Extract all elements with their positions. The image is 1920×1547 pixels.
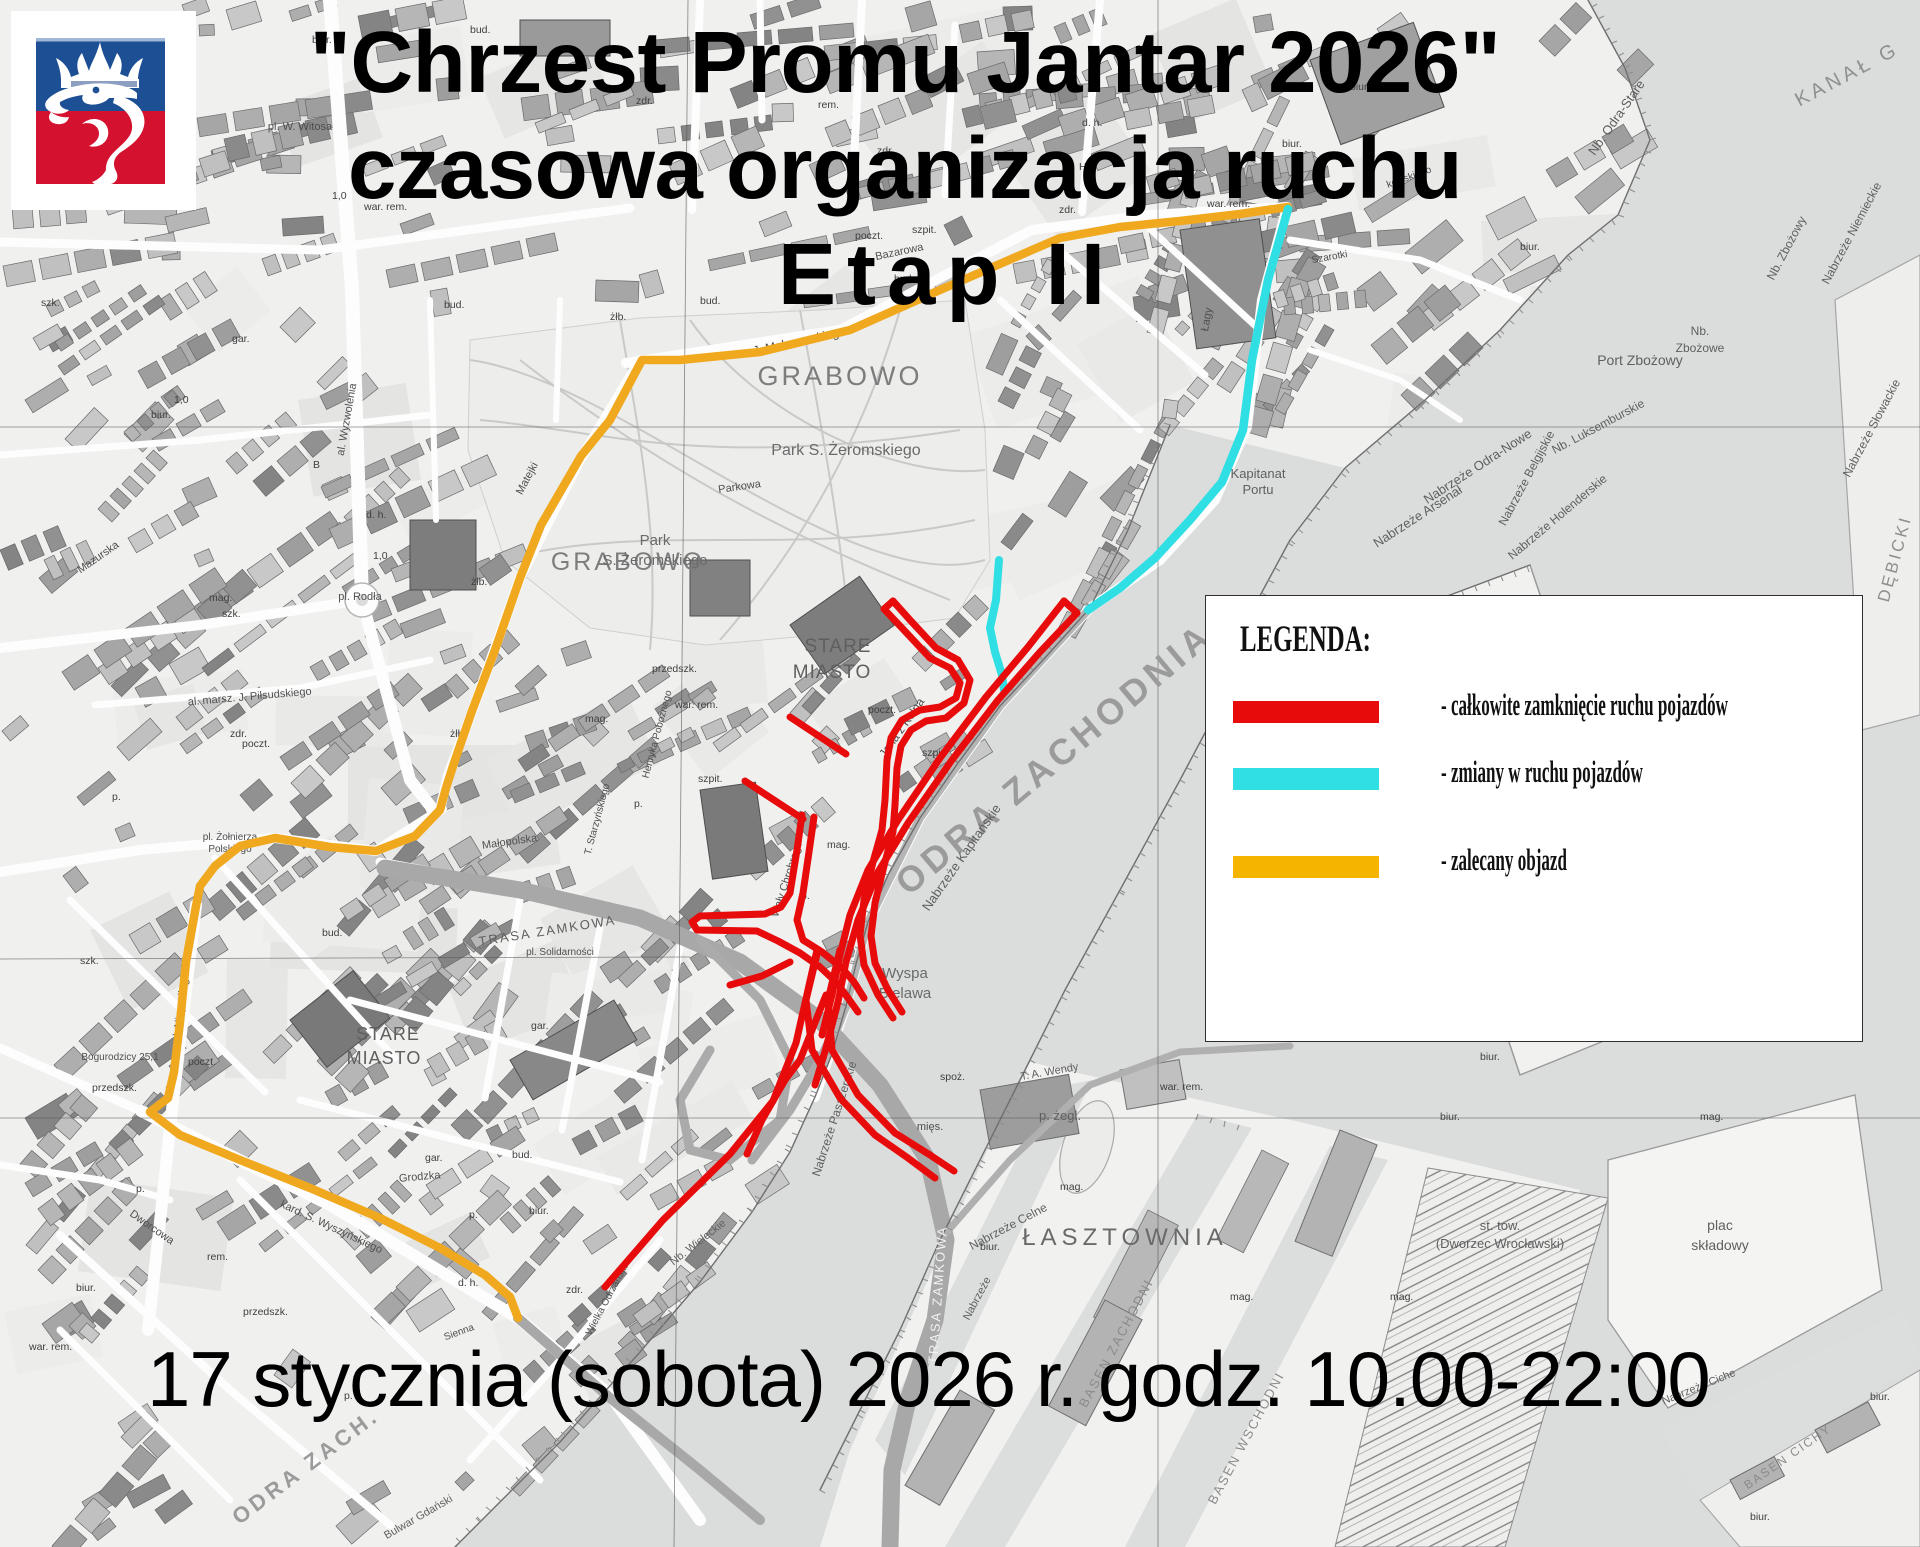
svg-text:war. rem.: war. rem.	[28, 1341, 72, 1353]
svg-text:Kapitanat: Kapitanat	[1231, 466, 1286, 481]
svg-text:mag.: mag.	[585, 713, 608, 725]
svg-text:Bogurodzicy 25,1: Bogurodzicy 25,1	[81, 1052, 159, 1063]
svg-text:szpit.: szpit.	[698, 773, 723, 785]
svg-text:plac: plac	[1707, 1217, 1733, 1233]
svg-text:gar.: gar.	[531, 1020, 549, 1032]
svg-text:biur.: biur.	[1480, 1051, 1500, 1063]
svg-text:biur.: biur.	[151, 409, 171, 421]
svg-text:Zbożowe: Zbożowe	[1676, 341, 1725, 355]
svg-text:biur.: biur.	[529, 1205, 549, 1217]
svg-text:war. rem.: war. rem.	[674, 699, 718, 711]
svg-text:mag.: mag.	[1700, 1111, 1723, 1123]
svg-text:przedszk.: przedszk.	[652, 663, 697, 675]
svg-text:(Dworzec Wrocławski): (Dworzec Wrocławski)	[1436, 1236, 1564, 1251]
svg-text:st. tow.: st. tow.	[1480, 1218, 1520, 1233]
svg-text:STARE: STARE	[356, 1024, 420, 1044]
svg-text:p. żegl.: p. żegl.	[1039, 1108, 1081, 1123]
svg-text:biur.: biur.	[1750, 1511, 1770, 1523]
svg-text:gar.: gar.	[425, 1152, 443, 1164]
svg-text:przedszk.: przedszk.	[243, 1306, 288, 1318]
svg-text:p.: p.	[634, 798, 643, 810]
svg-text:rem.: rem.	[207, 1251, 228, 1263]
svg-text:p.: p.	[469, 1209, 478, 1221]
svg-text:Park: Park	[640, 532, 671, 549]
svg-text:d. h.: d. h.	[366, 509, 386, 521]
svg-text:S. Żeromskiego: S. Żeromskiego	[602, 551, 707, 569]
svg-text:STARE: STARE	[805, 636, 872, 657]
svg-text:bud.: bud.	[512, 1149, 532, 1161]
svg-text:przedszk.: przedszk.	[92, 1082, 137, 1094]
svg-text:zdr.: zdr.	[230, 728, 247, 740]
svg-text:p.: p.	[136, 1183, 145, 1195]
svg-text:B: B	[313, 459, 320, 471]
svg-text:1,0: 1,0	[373, 550, 388, 562]
svg-text:war. rem.: war. rem.	[1159, 1081, 1203, 1093]
svg-text:żłb.: żłb.	[471, 576, 487, 588]
svg-text:1,0: 1,0	[174, 394, 189, 406]
svg-text:mag.: mag.	[1060, 1181, 1083, 1193]
svg-text:MIASTO: MIASTO	[793, 662, 872, 683]
svg-text:Port Zbożowy: Port Zbożowy	[1597, 352, 1683, 368]
svg-text:ŁASZTOWNIA: ŁASZTOWNIA	[1022, 1224, 1228, 1251]
svg-text:biur.: biur.	[980, 1241, 1000, 1253]
svg-text:poczt.: poczt.	[188, 1056, 216, 1068]
svg-text:biur.: biur.	[76, 1282, 96, 1294]
svg-text:mag.: mag.	[1230, 1291, 1253, 1303]
svg-text:szk.: szk.	[222, 608, 241, 620]
svg-text:d. h.: d. h.	[458, 1277, 478, 1289]
svg-text:mięs.: mięs.	[917, 1121, 943, 1133]
svg-text:szk.: szk.	[80, 955, 99, 967]
svg-text:p.: p.	[112, 791, 121, 803]
svg-text:pl. Rodła: pl. Rodła	[338, 591, 382, 603]
svg-text:Wyspa: Wyspa	[882, 965, 928, 982]
svg-text:poczt.: poczt.	[868, 704, 896, 716]
svg-text:spoż.: spoż.	[940, 1071, 965, 1083]
svg-text:Park S. Żeromskiego: Park S. Żeromskiego	[771, 440, 920, 459]
svg-text:biur.: biur.	[1440, 1111, 1460, 1123]
svg-text:biur.: biur.	[1870, 1391, 1890, 1403]
svg-text:zdr.: zdr.	[566, 1284, 583, 1296]
svg-text:mag.: mag.	[209, 592, 232, 604]
svg-text:bud.: bud.	[322, 927, 342, 939]
svg-text:pl. Solidarności: pl. Solidarności	[526, 947, 594, 958]
svg-text:MIASTO: MIASTO	[347, 1048, 422, 1068]
svg-text:Portu: Portu	[1242, 482, 1273, 497]
svg-text:mag.: mag.	[1390, 1291, 1413, 1303]
svg-text:składowy: składowy	[1691, 1237, 1749, 1253]
svg-text:mag.: mag.	[827, 839, 850, 851]
svg-text:gar.: gar.	[232, 333, 250, 345]
svg-text:GRABOWO: GRABOWO	[757, 361, 922, 391]
